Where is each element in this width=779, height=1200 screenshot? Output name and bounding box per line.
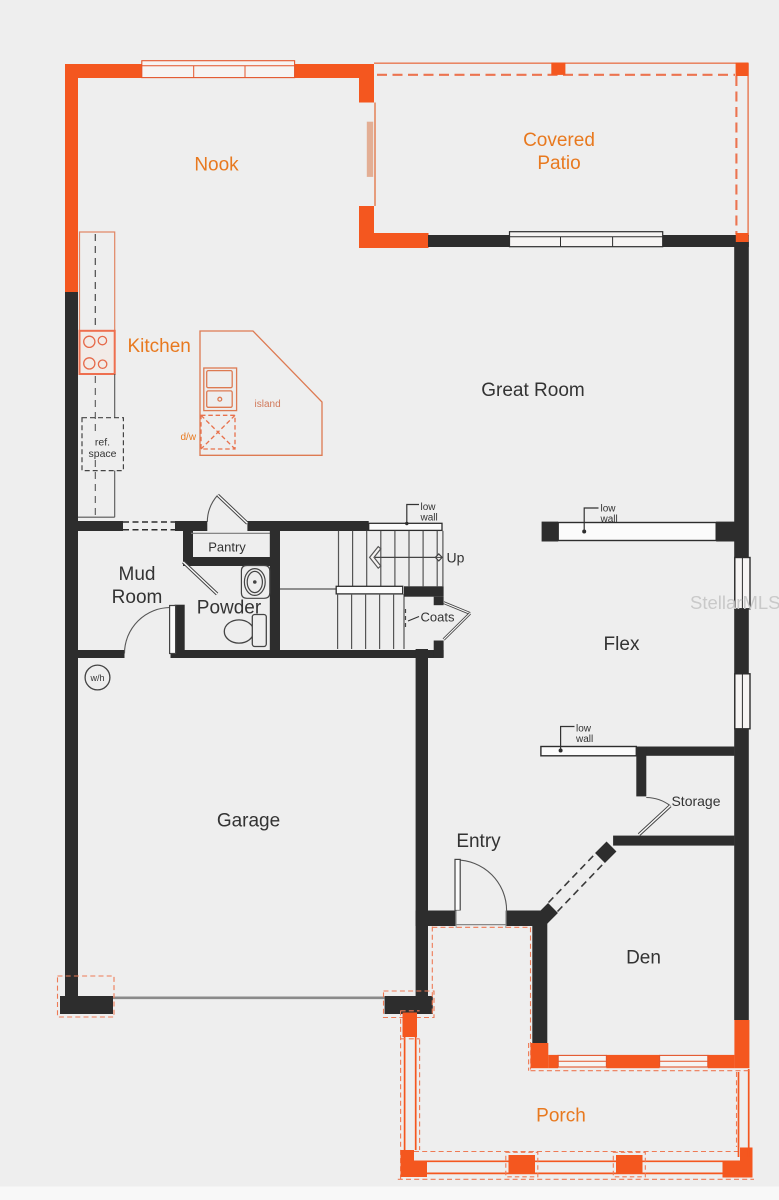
svg-text:low: low bbox=[421, 502, 437, 513]
svg-text:low: low bbox=[576, 724, 592, 735]
svg-text:Nook: Nook bbox=[194, 155, 239, 176]
svg-text:Entry: Entry bbox=[456, 831, 501, 852]
svg-text:w/h: w/h bbox=[89, 673, 104, 683]
svg-text:Powder: Powder bbox=[197, 598, 262, 619]
svg-text:Pantry: Pantry bbox=[208, 540, 246, 555]
svg-text:low: low bbox=[601, 504, 617, 515]
svg-text:Patio: Patio bbox=[537, 153, 580, 174]
svg-text:space: space bbox=[88, 448, 116, 460]
svg-text:ref.: ref. bbox=[95, 437, 110, 449]
svg-text:wall: wall bbox=[420, 513, 438, 524]
svg-text:Room: Room bbox=[112, 587, 163, 608]
svg-text:wall: wall bbox=[600, 514, 618, 525]
svg-text:StellarMLS: StellarMLS bbox=[690, 592, 779, 613]
svg-text:Up: Up bbox=[447, 550, 465, 566]
svg-text:Covered: Covered bbox=[523, 130, 595, 151]
svg-text:island: island bbox=[255, 399, 281, 410]
svg-text:Coats: Coats bbox=[421, 610, 455, 625]
svg-text:Storage: Storage bbox=[671, 793, 720, 809]
svg-text:Kitchen: Kitchen bbox=[128, 336, 191, 357]
svg-text:d/w: d/w bbox=[181, 432, 197, 443]
svg-text:wall: wall bbox=[575, 734, 593, 745]
svg-text:Great Room: Great Room bbox=[481, 380, 584, 401]
svg-text:Porch: Porch bbox=[536, 1106, 586, 1127]
svg-text:Garage: Garage bbox=[217, 811, 280, 832]
svg-text:Mud: Mud bbox=[119, 564, 156, 585]
svg-text:Flex: Flex bbox=[604, 634, 640, 655]
svg-text:Den: Den bbox=[626, 948, 661, 969]
